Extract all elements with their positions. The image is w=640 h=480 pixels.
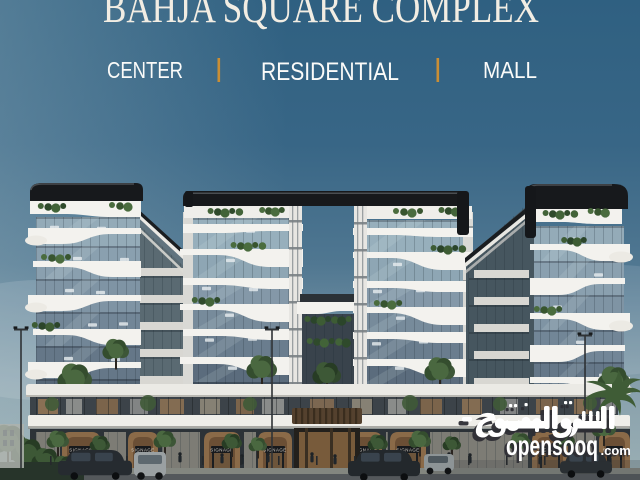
svg-text:RESIDENTIAL: RESIDENTIAL — [261, 58, 399, 86]
svg-text:BAHJA SQUARE COMPLEX: BAHJA SQUARE COMPLEX — [103, 0, 539, 32]
svg-text:opensooq: opensooq — [506, 430, 598, 461]
svg-text:MALL: MALL — [483, 57, 537, 83]
svg-text:.com: .com — [601, 443, 631, 458]
svg-text:SIGNAGE: SIGNAGE — [131, 448, 155, 453]
svg-text:SIGNAGE: SIGNAGE — [263, 448, 287, 453]
svg-text:CENTER: CENTER — [107, 57, 183, 83]
